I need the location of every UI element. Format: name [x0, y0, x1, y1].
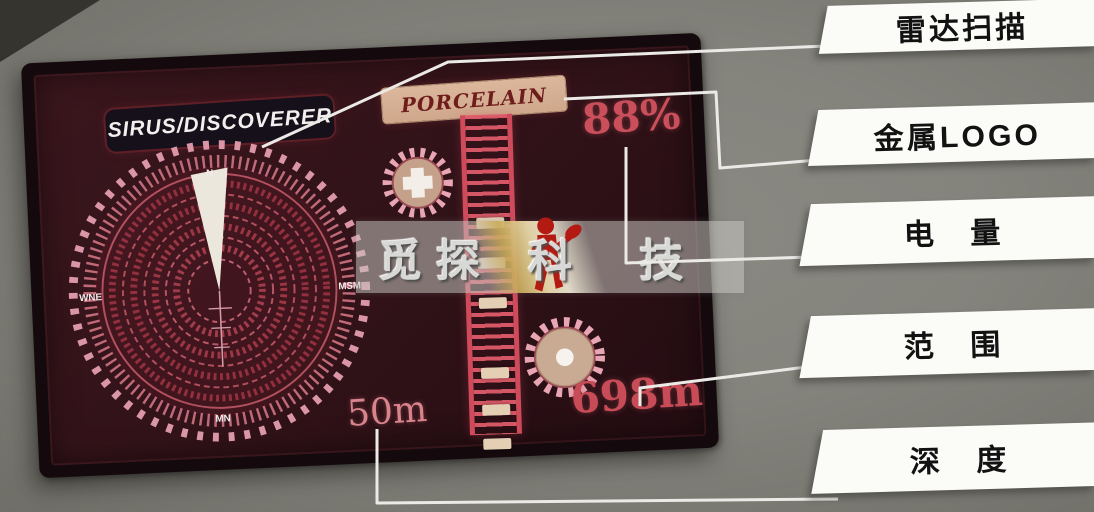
callout-radar-scan-text: 雷达扫描 [895, 2, 1029, 49]
callout-battery: 电 量 [799, 196, 1094, 266]
target-id-text: PORCELAIN [400, 82, 548, 116]
callout-metal-logo: 金属LOGO [808, 102, 1094, 166]
battery-percentage: 88% [581, 88, 704, 147]
callout-depth-text: 深 度 [909, 435, 1010, 481]
metal-logo-cross-coin [379, 144, 456, 221]
radar-dial-icon: N WNE MSM MN [57, 128, 383, 454]
watermark-right-text: 科 技 [528, 225, 709, 289]
ladder-marker [482, 404, 510, 416]
callout-radar-scan: 雷达扫描 [819, 0, 1094, 54]
watermark-band: 觅探 科 技 [356, 221, 744, 293]
watermark-left-text: 觅探 [378, 225, 494, 289]
ladder-marker [483, 438, 511, 450]
range-value: 698m [569, 366, 704, 423]
compass-bottom: MN [215, 413, 231, 425]
cross-coin-icon [379, 144, 456, 221]
radar-scan-display: N WNE MSM MN [57, 128, 383, 454]
ladder-marker [479, 297, 507, 309]
callout-depth: 深 度 [811, 422, 1094, 494]
callout-range-text: 范 围 [903, 320, 1004, 366]
depth-value: 50m [346, 389, 428, 435]
ladder-marker [481, 367, 509, 379]
callout-metal-logo-text: 金属LOGO [873, 110, 1042, 158]
callout-range: 范 围 [799, 308, 1094, 378]
callout-battery-text: 电 量 [903, 208, 1004, 254]
compass-left: WNE [79, 292, 103, 304]
compass-top: N [206, 168, 214, 179]
